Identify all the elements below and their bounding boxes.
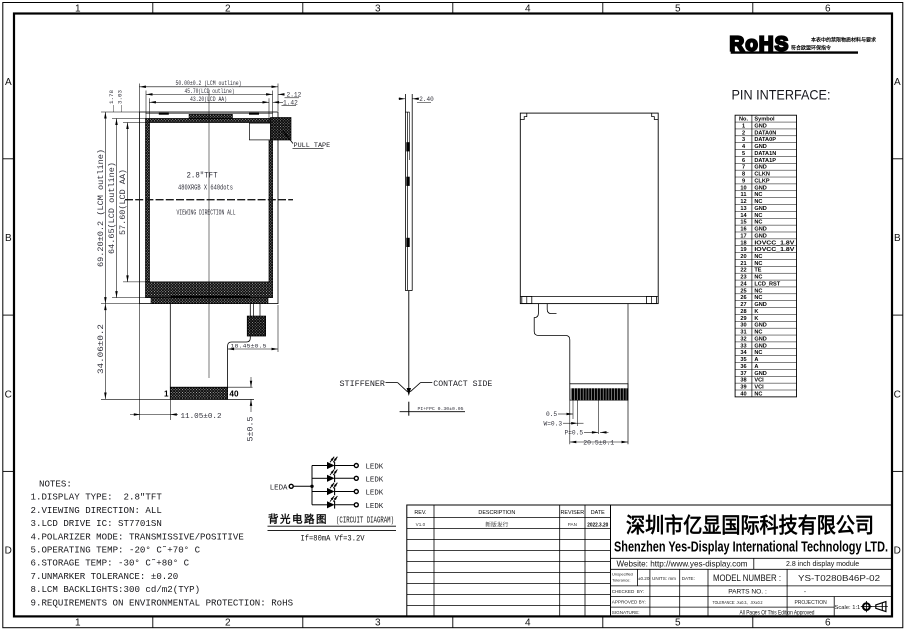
svg-text:背光电路图: 背光电路图 [268, 513, 328, 526]
svg-text:17: 17 [740, 233, 746, 239]
svg-text:SIGNATURE:: SIGNATURE: [612, 610, 640, 615]
svg-text:1.DISPLAY TYPE: 2.8″TFT: 1.DISPLAY TYPE: 2.8″TFT [31, 492, 163, 503]
svg-text:A: A [894, 77, 901, 88]
svg-text:P=0.5: P=0.5 [565, 430, 584, 437]
svg-text:NC: NC [754, 275, 762, 281]
svg-text:50.00±0.2 (LCM outline): 50.00±0.2 (LCM outline) [176, 80, 242, 87]
svg-text:2.VIEWING DIRECTION: ALL: 2.VIEWING DIRECTION: ALL [31, 505, 162, 516]
svg-text:38: 38 [740, 378, 746, 384]
svg-text:PI+FPC 0.30±0.05: PI+FPC 0.30±0.05 [418, 406, 464, 412]
svg-text:19: 19 [740, 247, 746, 253]
svg-text:6: 6 [742, 158, 745, 164]
svg-text:UNITS: mm: UNITS: mm [652, 576, 676, 581]
svg-text:VIEWING DIRECTION ALL: VIEWING DIRECTION ALL [177, 210, 236, 218]
svg-text:26: 26 [740, 295, 746, 301]
svg-text:11: 11 [741, 192, 747, 198]
svg-text:A: A [5, 77, 12, 88]
svg-text:NC: NC [754, 350, 762, 356]
svg-text:13: 13 [740, 206, 746, 212]
svg-text:GND: GND [754, 371, 766, 377]
svg-text:Website: http://www.yes-displa: Website: http://www.yes-display.com [617, 559, 748, 569]
svg-text:14: 14 [740, 213, 747, 219]
svg-text:Unspecified: Unspecified [612, 572, 633, 577]
svg-text:-: - [804, 589, 806, 596]
svg-text:All Pages Of This Edition Appr: All Pages Of This Edition Approved [740, 611, 815, 617]
svg-text:C: C [5, 389, 12, 400]
svg-text:7: 7 [742, 165, 745, 171]
svg-text:34: 34 [740, 350, 747, 356]
svg-text:40: 40 [740, 391, 746, 397]
svg-text:NC: NC [754, 220, 762, 226]
svg-text:DATA1N: DATA1N [754, 151, 776, 157]
svg-text:NC: NC [754, 330, 762, 336]
svg-text:Shenzhen Yes-Display Internati: Shenzhen Yes-Display International Techn… [614, 540, 888, 556]
svg-text:CHECKED BY:: CHECKED BY: [612, 589, 644, 594]
svg-text:30: 30 [740, 323, 746, 329]
svg-text:K: K [754, 316, 758, 322]
svg-text:4: 4 [525, 618, 531, 629]
svg-text:36: 36 [740, 364, 746, 370]
svg-text:25: 25 [740, 288, 746, 294]
svg-text:NC: NC [754, 213, 762, 219]
svg-text:PAN: PAN [568, 522, 577, 527]
svg-text:PULL TAPE: PULL TAPE [294, 142, 331, 150]
svg-text:27: 27 [740, 302, 746, 308]
svg-text:5: 5 [675, 618, 681, 629]
svg-text:15: 15 [740, 220, 746, 226]
svg-text:GND: GND [754, 233, 766, 239]
svg-text:GND: GND [754, 323, 766, 329]
svg-text:2: 2 [225, 618, 231, 629]
svg-text:1: 1 [75, 4, 81, 15]
svg-text:D: D [894, 545, 901, 556]
svg-text:TOLERANCE: .X±0.3、.XX±0.2: TOLERANCE: .X±0.3、.XX±0.2 [713, 600, 763, 606]
svg-text:K: K [754, 309, 758, 315]
svg-text:40: 40 [229, 390, 239, 399]
svg-text:GND: GND [754, 343, 766, 349]
svg-text:REVISER: REVISER [561, 510, 585, 516]
svg-text:符合欧盟环保指令: 符合欧盟环保指令 [791, 45, 832, 52]
svg-text:1: 1 [75, 618, 81, 629]
svg-text:4: 4 [742, 144, 746, 150]
svg-text:64.65(LCD outline): 64.65(LCD outline) [108, 162, 117, 254]
svg-text:NC: NC [754, 288, 762, 294]
svg-text:DATE:: DATE: [682, 576, 695, 581]
svg-text:45.70(LCD outline): 45.70(LCD outline) [185, 88, 235, 95]
svg-text:NC: NC [754, 254, 762, 260]
svg-text:A: A [754, 357, 758, 363]
svg-text:LEDK: LEDK [366, 464, 384, 472]
svg-text:29: 29 [740, 316, 746, 322]
svg-text:D: D [5, 545, 12, 556]
svg-text:3: 3 [375, 4, 381, 15]
svg-text:6: 6 [825, 4, 831, 15]
svg-text:B: B [5, 233, 12, 244]
svg-text:GND: GND [754, 123, 766, 129]
svg-text:31: 31 [740, 330, 746, 336]
svg-text:20.5±0.1: 20.5±0.1 [583, 439, 614, 446]
svg-text:69.20±0.2 (LCM outline): 69.20±0.2 (LCM outline) [97, 149, 106, 267]
svg-text:2: 2 [742, 130, 745, 136]
svg-text:GND: GND [754, 302, 766, 308]
svg-text:8.LCM BACKLIGHTS:300 cd/m2(TYP: 8.LCM BACKLIGHTS:300 cd/m2(TYP) [31, 584, 201, 595]
svg-text:2.40: 2.40 [419, 96, 434, 103]
svg-text:NC: NC [754, 391, 762, 397]
svg-text:LCD_RST: LCD_RST [754, 281, 780, 287]
svg-text:5±0.5: 5±0.5 [247, 416, 256, 441]
svg-text:57.60(LCD AA): 57.60(LCD AA) [119, 169, 128, 235]
svg-text:10: 10 [740, 185, 746, 191]
svg-text:9.REQUIREMENTS ON ENVIRONMENTA: 9.REQUIREMENTS ON ENVIRONMENTAL PROTECTI… [31, 597, 294, 608]
svg-text:3: 3 [375, 618, 381, 629]
svg-text:11.05±0.2: 11.05±0.2 [181, 413, 222, 421]
svg-text:新版发行: 新版发行 [485, 520, 508, 528]
svg-text:1: 1 [164, 390, 169, 399]
svg-text:3: 3 [742, 137, 745, 143]
svg-text:LEDK: LEDK [366, 503, 384, 511]
svg-text:Tolerance:: Tolerance: [612, 578, 630, 583]
svg-text:No.: No. [739, 117, 748, 123]
svg-text:深圳市亿显国际科技有限公司: 深圳市亿显国际科技有限公司 [626, 514, 874, 538]
svg-text:REV.: REV. [414, 510, 426, 516]
svg-text:C: C [894, 389, 901, 400]
svg-text:GND: GND [754, 165, 766, 171]
svg-text:2.8″TFT: 2.8″TFT [187, 171, 218, 181]
svg-text:VCI: VCI [754, 378, 764, 384]
svg-text:1.78: 1.78 [108, 90, 115, 104]
svg-text:2: 2 [225, 4, 231, 15]
svg-text:480XRGB X 640dots: 480XRGB X 640dots [178, 185, 233, 193]
svg-text:NC: NC [754, 192, 762, 198]
svg-text:IOVCC_1.8V: IOVCC_1.8V [754, 247, 794, 253]
svg-text:DATA0P: DATA0P [754, 137, 776, 143]
svg-text:B: B [894, 233, 901, 244]
svg-text:5.OPERATING TEMP: -20° C˜+70°: 5.OPERATING TEMP: -20° C˜+70° C [31, 545, 201, 556]
svg-text:(CIRCUIT DIAGRAM): (CIRCUIT DIAGRAM) [336, 515, 394, 526]
svg-text:GND: GND [754, 144, 766, 150]
svg-text:28: 28 [740, 309, 746, 315]
svg-text:Symbol: Symbol [754, 117, 775, 123]
svg-text:LEDK: LEDK [366, 490, 384, 498]
svg-text:18: 18 [740, 240, 746, 246]
svg-text:NC: NC [754, 261, 762, 267]
svg-text:MODEL NUMBER :: MODEL NUMBER : [713, 573, 781, 584]
svg-text:±0.20: ±0.20 [638, 576, 650, 581]
svg-text:GND: GND [754, 227, 766, 233]
svg-text:DATA0N: DATA0N [754, 130, 776, 136]
svg-text:STIFFENER: STIFFENER [340, 379, 386, 389]
svg-text:5: 5 [742, 151, 745, 157]
svg-text:NOTES:: NOTES: [39, 479, 72, 490]
svg-text:9: 9 [742, 178, 745, 184]
svg-text:20: 20 [740, 254, 746, 260]
svg-text:4.POLARIZER MODE: TRANSMISSIVE: 4.POLARIZER MODE: TRANSMISSIVE/POSITIVE [31, 531, 245, 542]
svg-text:Scale: 1:1: Scale: 1:1 [835, 605, 861, 611]
svg-text:6.STORAGE TEMP: -30° C˜+80° C: 6.STORAGE TEMP: -30° C˜+80° C [31, 558, 190, 569]
svg-text:A: A [754, 364, 758, 370]
svg-text:LEDK: LEDK [366, 477, 384, 485]
svg-text:NC: NC [754, 295, 762, 301]
svg-text:3.03: 3.03 [116, 90, 123, 104]
svg-text:7.UNMARKER TOLERANCE: ±0.20: 7.UNMARKER TOLERANCE: ±0.20 [31, 571, 179, 582]
svg-text:DATE: DATE [591, 510, 605, 516]
svg-text:5: 5 [675, 4, 681, 15]
svg-text:34.06±0.2: 34.06±0.2 [97, 324, 106, 374]
svg-text:CLKP: CLKP [754, 178, 769, 184]
svg-text:W=0.3: W=0.3 [544, 420, 563, 427]
svg-text:GND: GND [754, 185, 766, 191]
svg-text:18.45±0.5: 18.45±0.5 [231, 342, 267, 349]
svg-text:DATA1P: DATA1P [754, 158, 776, 164]
svg-text:GND: GND [754, 206, 766, 212]
svg-text:0.5: 0.5 [546, 411, 557, 418]
svg-text:2022.3.20: 2022.3.20 [587, 522, 608, 528]
svg-text:LEDA: LEDA [270, 484, 288, 492]
svg-text:21: 21 [740, 261, 746, 267]
svg-text:CONTACT SIDE: CONTACT SIDE [433, 379, 492, 389]
svg-text:2.8 inch display module: 2.8 inch display module [786, 561, 859, 568]
svg-text:IOVCC_1.8V: IOVCC_1.8V [754, 240, 794, 246]
svg-text:NC: NC [754, 199, 762, 205]
svg-text:12: 12 [740, 199, 746, 205]
svg-text:3.LCD DRIVE IC: ST7701SN: 3.LCD DRIVE IC: ST7701SN [31, 518, 162, 529]
svg-text:YS-T0280B46P-02: YS-T0280B46P-02 [798, 574, 881, 583]
svg-text:CLKN: CLKN [754, 172, 770, 178]
svg-text:VCI: VCI [754, 385, 764, 391]
svg-text:GND: GND [754, 336, 766, 342]
svg-text:PROJECTION: PROJECTION [794, 600, 827, 606]
svg-text:23: 23 [740, 275, 746, 281]
svg-text:DESCRIPTION: DESCRIPTION [478, 510, 515, 516]
svg-text:6: 6 [825, 618, 831, 629]
svg-text:33: 33 [740, 343, 746, 349]
svg-text:32: 32 [740, 336, 746, 342]
svg-text:V1.0: V1.0 [416, 522, 426, 527]
svg-text:22: 22 [740, 268, 746, 274]
svg-text:39: 39 [740, 385, 746, 391]
svg-text:本表中的禁限物质材料与要求: 本表中的禁限物质材料与要求 [810, 37, 877, 44]
svg-text:PARTS NO. :: PARTS NO. : [728, 589, 767, 596]
svg-text:43.20(LCD AA): 43.20(LCD AA) [190, 96, 227, 103]
svg-text:8: 8 [742, 172, 745, 178]
svg-text:APPROVED BY:: APPROVED BY: [612, 600, 646, 605]
svg-text:4: 4 [525, 4, 531, 15]
svg-text:1: 1 [742, 123, 745, 129]
svg-text:24: 24 [740, 281, 747, 287]
svg-text:16: 16 [740, 227, 746, 233]
svg-text:If=80mA Vf=3.2V: If=80mA Vf=3.2V [301, 534, 365, 543]
svg-text:TE: TE [754, 268, 761, 274]
svg-text:35: 35 [740, 357, 746, 363]
svg-text:PIN INTERFACE:: PIN INTERFACE: [732, 86, 831, 102]
svg-text:37: 37 [740, 371, 746, 377]
